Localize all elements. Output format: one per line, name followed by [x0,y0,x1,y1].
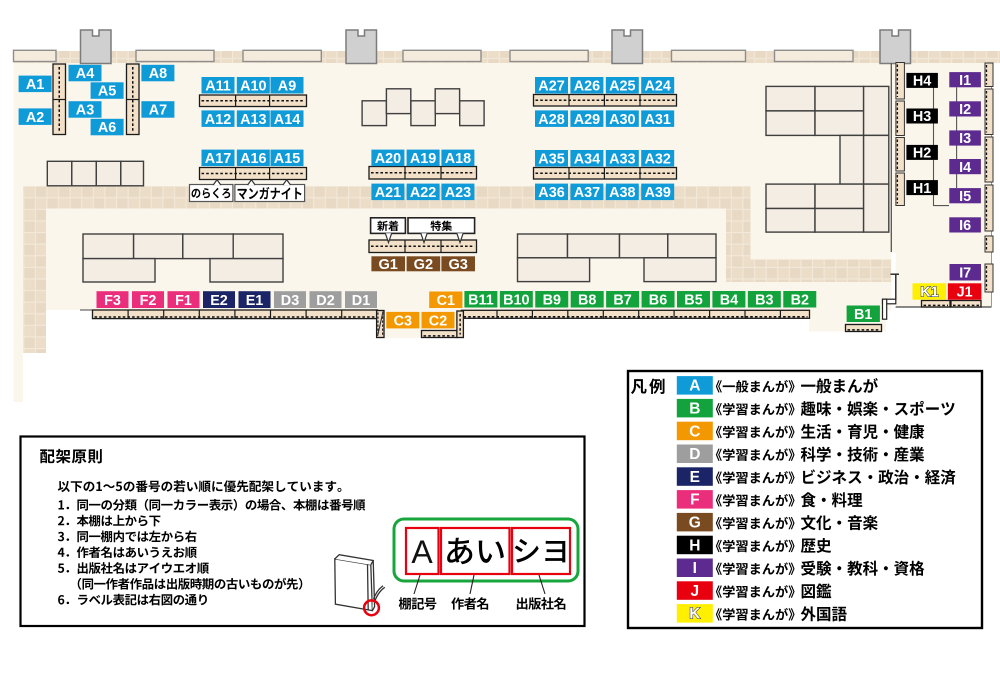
svg-text:A26: A26 [574,78,600,94]
svg-text:G2: G2 [414,257,433,273]
svg-text:C: C [689,423,700,440]
svg-text:B: B [689,401,700,418]
svg-text:A6: A6 [98,120,116,136]
svg-text:A14: A14 [274,112,300,128]
svg-text:B7: B7 [613,292,631,308]
svg-text:A13: A13 [240,112,266,128]
svg-text:I: I [693,560,697,577]
svg-text:A33: A33 [609,151,635,167]
svg-text:B4: B4 [720,292,738,308]
svg-text:E1: E1 [246,293,264,309]
svg-text:A: A [689,378,700,395]
svg-text:A31: A31 [644,112,670,128]
svg-text:H3: H3 [913,109,931,125]
svg-text:A12: A12 [205,112,231,128]
svg-text:A29: A29 [574,112,600,128]
svg-text:E2: E2 [210,293,228,309]
svg-text:A39: A39 [644,185,670,201]
svg-text:A27: A27 [538,78,564,94]
svg-text:C3: C3 [394,313,412,329]
svg-text:H2: H2 [913,146,931,162]
svg-text:A21: A21 [375,185,401,201]
svg-text:B5: B5 [684,292,702,308]
svg-text:A9: A9 [278,78,296,94]
svg-text:A32: A32 [644,151,670,167]
svg-text:B2: B2 [791,292,809,308]
svg-text:I3: I3 [959,131,971,147]
svg-text:H: H [689,537,700,554]
svg-text:A15: A15 [274,151,300,167]
svg-text:A10: A10 [240,78,266,94]
svg-text:E: E [690,469,700,486]
svg-text:A25: A25 [609,78,635,94]
svg-text:A34: A34 [574,151,600,167]
svg-text:B3: B3 [755,292,773,308]
svg-text:A37: A37 [574,185,600,201]
svg-text:A: A [411,534,433,570]
svg-text:A11: A11 [205,78,231,94]
svg-text:A18: A18 [445,151,471,167]
svg-text:I1: I1 [959,73,971,89]
svg-text:K: K [689,606,701,623]
svg-text:A7: A7 [149,103,167,119]
svg-text:A5: A5 [98,84,116,100]
svg-text:F2: F2 [140,293,157,309]
svg-text:F1: F1 [175,293,192,309]
svg-text:G1: G1 [378,257,397,273]
svg-text:A24: A24 [644,78,670,94]
svg-text:A17: A17 [205,151,231,167]
svg-text:D1: D1 [352,293,370,309]
svg-text:H4: H4 [913,74,931,90]
svg-text:A19: A19 [410,151,436,167]
svg-text:A3: A3 [76,103,94,119]
svg-text:F: F [690,492,699,509]
svg-text:A2: A2 [26,110,44,126]
svg-text:F3: F3 [104,293,121,309]
svg-text:B10: B10 [503,292,529,308]
svg-text:A20: A20 [375,151,401,167]
svg-text:A16: A16 [240,151,266,167]
svg-text:C1: C1 [437,293,455,309]
svg-text:J1: J1 [957,285,973,301]
svg-text:A22: A22 [410,185,436,201]
svg-text:A28: A28 [538,112,564,128]
svg-text:A30: A30 [609,112,635,128]
svg-text:A4: A4 [76,66,94,82]
svg-text:B1: B1 [854,307,872,323]
svg-text:B6: B6 [649,292,667,308]
svg-text:J: J [690,583,699,600]
svg-text:I5: I5 [959,189,971,205]
svg-text:I7: I7 [959,265,971,281]
svg-text:A1: A1 [26,77,44,93]
svg-text:G: G [689,515,701,532]
svg-text:C2: C2 [429,313,447,329]
svg-text:I2: I2 [959,102,971,118]
svg-text:D: D [689,446,700,463]
svg-text:D2: D2 [316,293,334,309]
svg-text:G3: G3 [448,257,467,273]
svg-text:A36: A36 [538,185,564,201]
svg-text:A35: A35 [538,151,564,167]
svg-text:A38: A38 [609,185,635,201]
svg-text:A23: A23 [445,185,471,201]
svg-text:B8: B8 [578,292,596,308]
svg-text:H1: H1 [913,181,931,197]
svg-text:I6: I6 [959,218,971,234]
svg-text:B9: B9 [543,292,561,308]
svg-text:A8: A8 [149,66,167,82]
svg-text:I4: I4 [959,160,971,176]
svg-text:K1: K1 [920,285,938,301]
svg-text:D3: D3 [281,293,299,309]
svg-text:B11: B11 [468,292,494,308]
